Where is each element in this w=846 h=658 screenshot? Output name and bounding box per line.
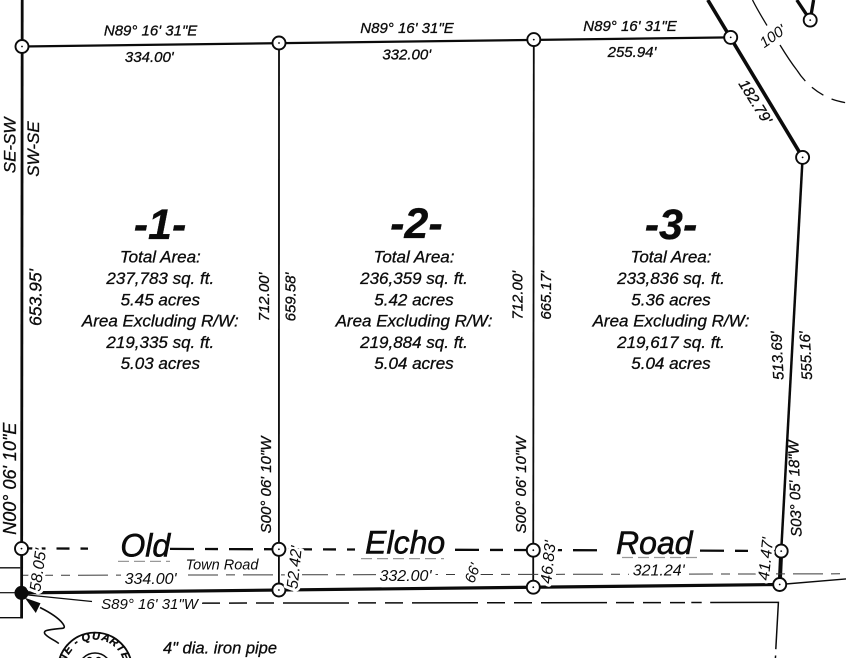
- svg-text:334.00': 334.00': [125, 49, 175, 66]
- svg-text:-1-: -1-: [134, 201, 187, 249]
- svg-text:SW-SE: SW-SE: [24, 121, 43, 177]
- svg-text:334.00': 334.00': [125, 571, 178, 588]
- svg-text:712.00': 712.00': [256, 271, 273, 321]
- svg-text:-2-: -2-: [390, 200, 443, 248]
- svg-text:332.00': 332.00': [380, 568, 433, 585]
- svg-text:Old: Old: [120, 528, 171, 564]
- svg-text:233,836 sq. ft.: 233,836 sq. ft.: [616, 269, 725, 288]
- svg-text:Total Area:: Total Area:: [374, 248, 455, 267]
- svg-text:255.94': 255.94': [607, 44, 658, 61]
- svg-text:Road: Road: [616, 525, 694, 561]
- svg-text:Area Excluding R/W:: Area Excluding R/W:: [592, 312, 750, 331]
- svg-text:5.36 acres: 5.36 acres: [631, 290, 711, 309]
- svg-text:513.69': 513.69': [768, 330, 788, 381]
- svg-text:5.03 acres: 5.03 acres: [121, 354, 201, 373]
- svg-text:N00° 06' 10"E: N00° 06' 10"E: [0, 422, 20, 535]
- svg-text:Area Excluding R/W:: Area Excluding R/W:: [335, 312, 493, 331]
- svg-text:5.04 acres: 5.04 acres: [374, 354, 454, 373]
- svg-text:659.58': 659.58': [283, 271, 300, 321]
- svg-text:Town Road: Town Road: [186, 558, 260, 574]
- svg-text:219,884 sq. ft.: 219,884 sq. ft.: [359, 333, 468, 352]
- svg-text:5.04 acres: 5.04 acres: [631, 354, 711, 373]
- svg-text:S89° 16' 31"W: S89° 16' 31"W: [101, 596, 200, 613]
- svg-text:N89° 16' 31"E: N89° 16' 31"E: [104, 23, 198, 40]
- svg-text:SE-SW: SE-SW: [1, 116, 20, 174]
- svg-text:665.17': 665.17': [538, 270, 555, 320]
- svg-text:S00° 06' 10"W: S00° 06' 10"W: [258, 435, 275, 534]
- svg-text:N89° 16' 31"E: N89° 16' 31"E: [583, 18, 677, 35]
- svg-text:5.42 acres: 5.42 acres: [374, 290, 454, 309]
- svg-text:332.00': 332.00': [382, 47, 432, 64]
- svg-text:4" dia. iron pipe: 4" dia. iron pipe: [163, 640, 277, 658]
- svg-text:Elcho: Elcho: [365, 525, 445, 561]
- svg-text:712.00': 712.00': [509, 270, 526, 320]
- svg-text:N89° 16' 31"E: N89° 16' 31"E: [360, 20, 454, 37]
- svg-text:Total Area:: Total Area:: [631, 248, 712, 267]
- svg-text:S00° 06' 10"W: S00° 06' 10"W: [513, 435, 530, 534]
- svg-text:555.16': 555.16': [797, 330, 817, 381]
- svg-text:5.45 acres: 5.45 acres: [121, 290, 201, 309]
- svg-text:219,617 sq. ft.: 219,617 sq. ft.: [616, 333, 725, 352]
- svg-text:321.24': 321.24': [633, 563, 686, 580]
- svg-text:Total Area:: Total Area:: [120, 248, 201, 267]
- svg-text:653.95': 653.95': [26, 268, 46, 326]
- svg-text:S03° 05' 18"W: S03° 05' 18"W: [785, 438, 805, 537]
- svg-text:237,783 sq. ft.: 237,783 sq. ft.: [105, 269, 214, 288]
- svg-text:-3-: -3-: [645, 201, 698, 249]
- svg-text:236,359 sq. ft.: 236,359 sq. ft.: [359, 269, 468, 288]
- svg-text:Area Excluding R/W:: Area Excluding R/W:: [81, 312, 239, 331]
- svg-text:219,335 sq. ft.: 219,335 sq. ft.: [105, 333, 214, 352]
